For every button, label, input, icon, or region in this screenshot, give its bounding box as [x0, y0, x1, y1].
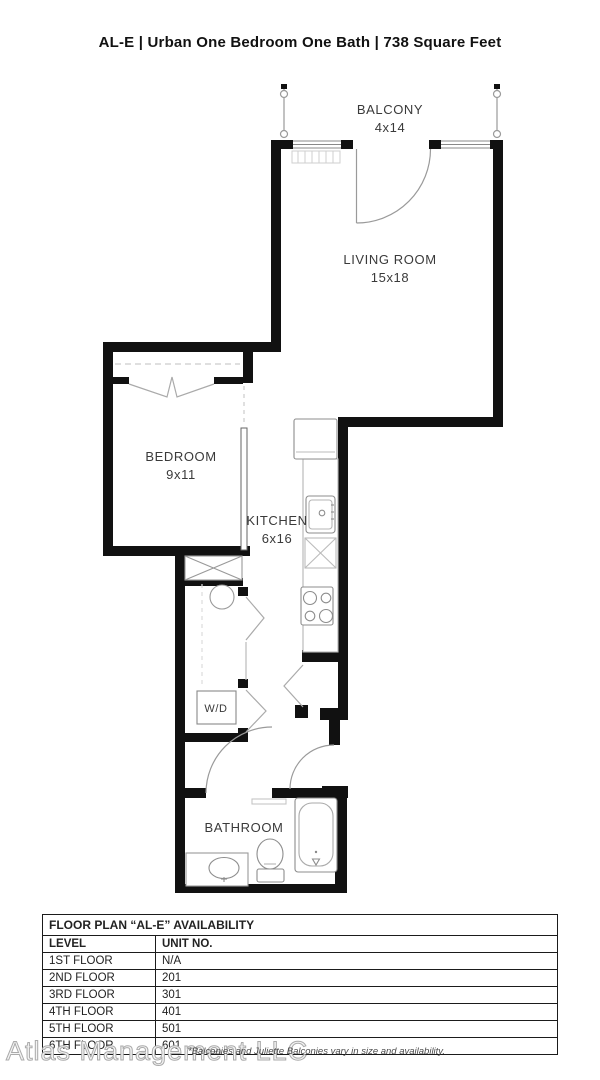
level-cell: 5TH FLOOR [43, 1021, 156, 1038]
unit-cell: 201 [156, 970, 558, 987]
bathroom-fixtures [186, 798, 337, 886]
toilet-icon [257, 839, 284, 882]
balcony-dims: 4x14 [375, 120, 406, 135]
table-row: 4TH FLOOR 401 [43, 1004, 558, 1021]
linen-closet [185, 556, 242, 580]
living-room-label: LIVING ROOM [343, 252, 436, 267]
refrigerator-icon [294, 419, 337, 459]
unit-cell: 401 [156, 1004, 558, 1021]
unit-cell: 501 [156, 1021, 558, 1038]
bathroom-shelf [252, 799, 286, 804]
pantry-door [284, 665, 303, 707]
col-header-unit: UNIT NO. [156, 936, 558, 953]
balcony-disclaimer: *Balconies and Juliette Balconies vary i… [188, 1046, 445, 1057]
baseboard-heater [292, 151, 340, 163]
vanity-sink-icon [186, 853, 248, 886]
water-heater-icon [210, 585, 234, 609]
living-room-dims: 15x18 [371, 270, 409, 285]
closet-bifold-doors [129, 377, 214, 397]
utility-closet-doors [246, 597, 264, 640]
kitchen-label: KITCHEN [246, 513, 307, 528]
unit-cell: 301 [156, 987, 558, 1004]
windows [293, 140, 490, 149]
availability-table: FLOOR PLAN “AL-E” AVAILABILITY LEVEL UNI… [42, 914, 558, 1055]
bathroom-label: BATHROOM [205, 820, 284, 835]
washer-dryer-label: W/D [204, 703, 227, 715]
bedroom-dims: 9x11 [166, 467, 196, 482]
level-cell: 1ST FLOOR [43, 953, 156, 970]
balcony-label: BALCONY [357, 102, 423, 117]
unit-cell: N/A [156, 953, 558, 970]
level-cell: 3RD FLOOR [43, 987, 156, 1004]
col-header-level: LEVEL [43, 936, 156, 953]
dishwasher-icon [305, 538, 336, 568]
table-title-row: FLOOR PLAN “AL-E” AVAILABILITY [43, 915, 558, 936]
laundry-closet-doors [246, 690, 266, 732]
level-cell: 2ND FLOOR [43, 970, 156, 987]
floor-plan: BALCONY 4x14 LIVING ROOM 15x18 BEDROOM 9… [0, 0, 600, 910]
bathtub-icon [295, 798, 337, 872]
table-row: 1ST FLOOR N/A [43, 953, 558, 970]
flyer-page: AL-E | Urban One Bedroom One Bath | 738 … [0, 0, 600, 1080]
level-cell: 4TH FLOOR [43, 1004, 156, 1021]
kitchen-fixtures [294, 419, 338, 652]
entry-door-swing [290, 745, 334, 789]
table-row: 5TH FLOOR 501 [43, 1021, 558, 1038]
table-row: 3RD FLOOR 301 [43, 987, 558, 1004]
table-header-row: LEVEL UNIT NO. [43, 936, 558, 953]
bedroom-sliding-door [241, 428, 247, 550]
bedroom-label: BEDROOM [145, 449, 216, 464]
kitchen-dims: 6x16 [262, 531, 293, 546]
table-title: FLOOR PLAN “AL-E” AVAILABILITY [43, 915, 558, 936]
stove-icon [301, 587, 333, 625]
table-row: 2ND FLOOR 201 [43, 970, 558, 987]
